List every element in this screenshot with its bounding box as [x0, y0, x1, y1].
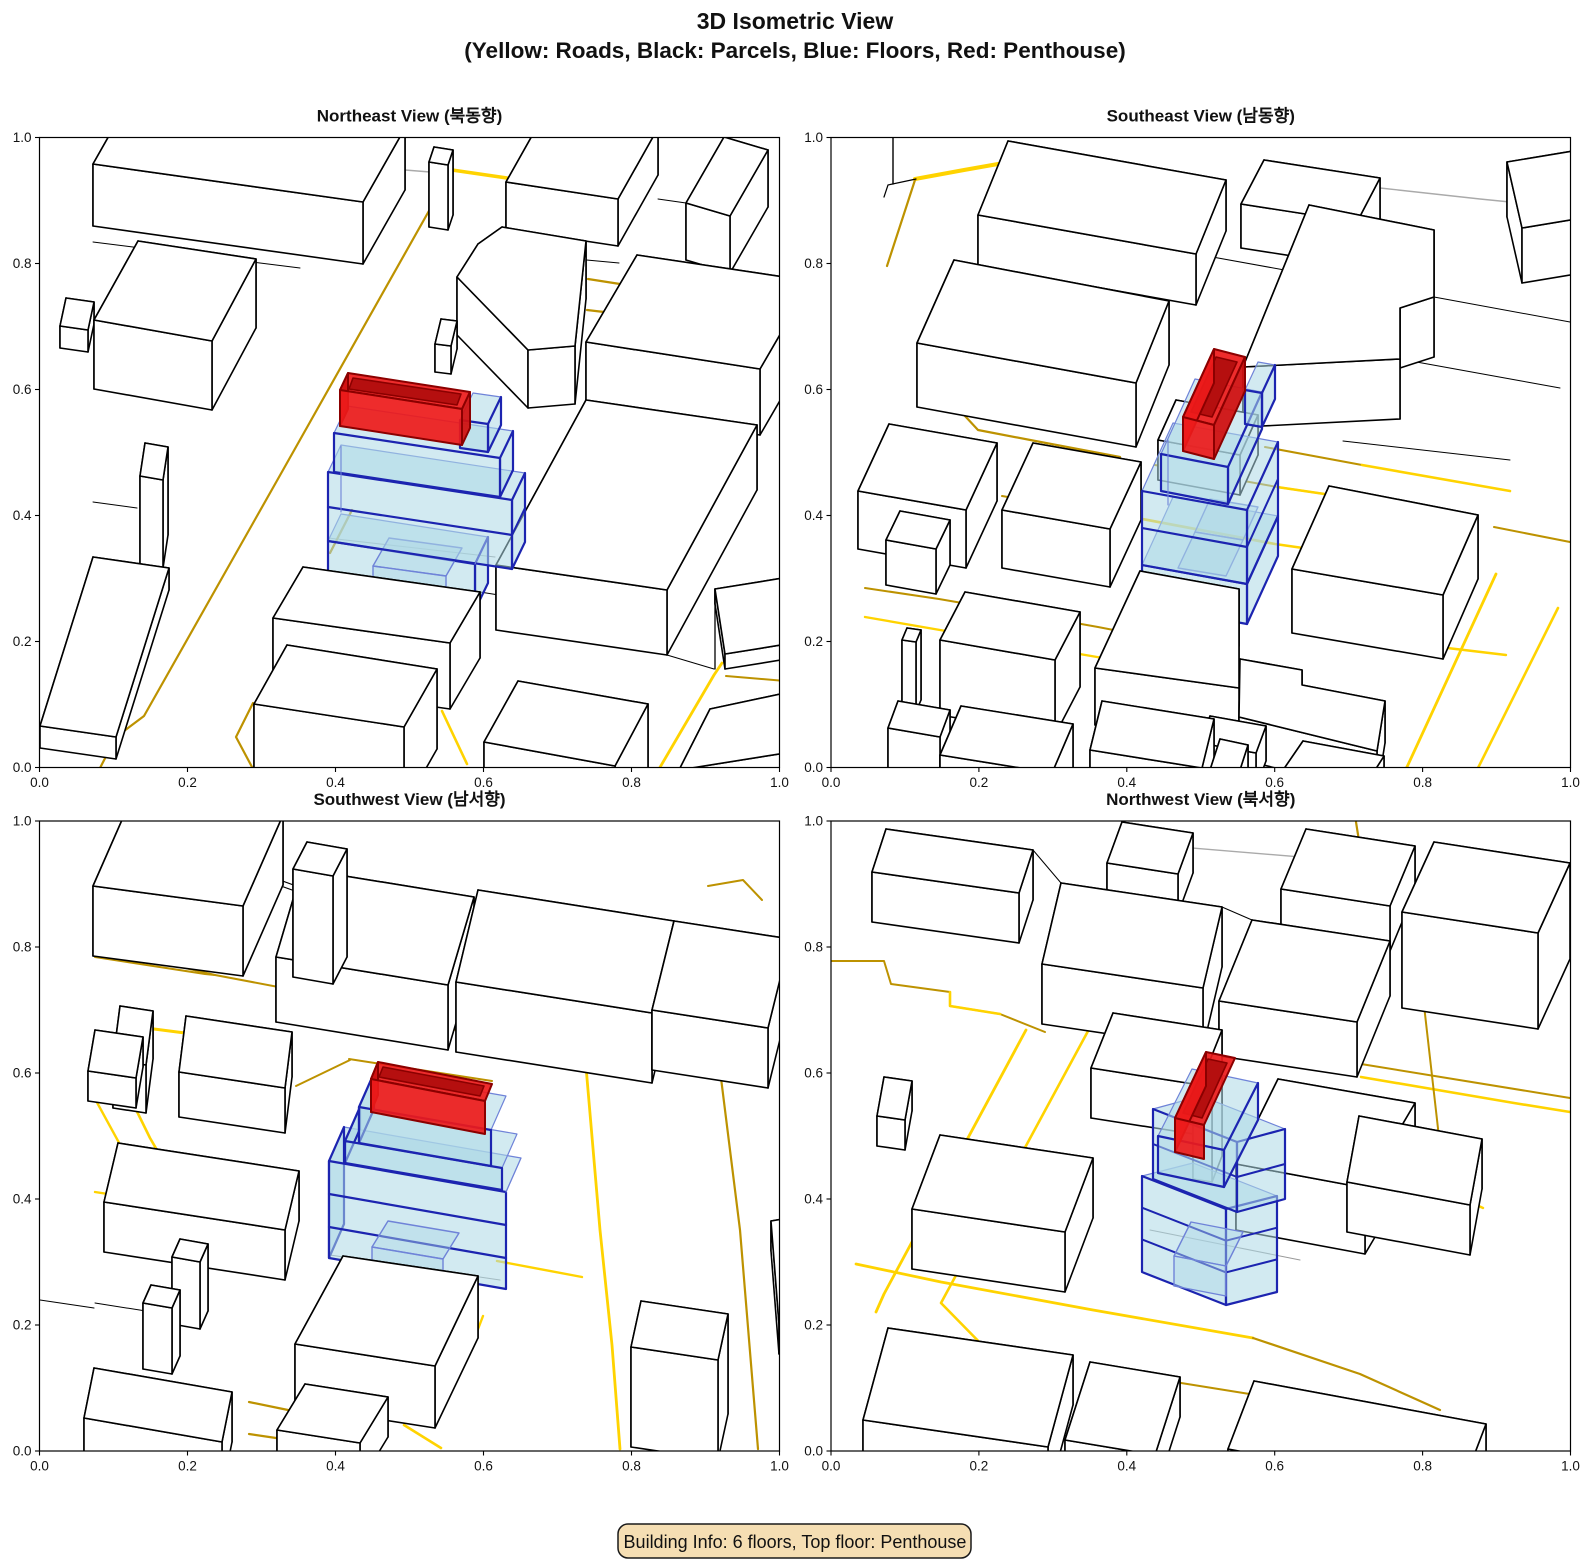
- svg-text:0.4: 0.4: [804, 508, 823, 523]
- svg-text:0.6: 0.6: [474, 775, 493, 790]
- svg-text:0.8: 0.8: [1413, 1459, 1432, 1474]
- svg-text:0.0: 0.0: [804, 760, 823, 775]
- svg-text:0.4: 0.4: [1117, 775, 1136, 790]
- svg-text:Northeast View (북동향): Northeast View (북동향): [317, 106, 502, 126]
- svg-text:0.8: 0.8: [13, 256, 32, 271]
- svg-text:0.6: 0.6: [13, 1066, 32, 1081]
- svg-text:1.0: 1.0: [1561, 1459, 1580, 1474]
- svg-text:0.8: 0.8: [804, 256, 823, 271]
- svg-text:0.4: 0.4: [13, 508, 32, 523]
- svg-text:0.8: 0.8: [1413, 775, 1432, 790]
- svg-text:0.0: 0.0: [30, 775, 49, 790]
- svg-text:0.0: 0.0: [804, 1444, 823, 1459]
- svg-text:1.0: 1.0: [13, 130, 32, 145]
- svg-text:1.0: 1.0: [13, 814, 32, 829]
- svg-text:0.2: 0.2: [178, 775, 197, 790]
- svg-text:0.2: 0.2: [804, 634, 823, 649]
- svg-text:1.0: 1.0: [770, 1459, 789, 1474]
- svg-text:0.4: 0.4: [13, 1192, 32, 1207]
- svg-text:1.0: 1.0: [770, 775, 789, 790]
- svg-text:1.0: 1.0: [804, 814, 823, 829]
- svg-text:Southeast View (남동향): Southeast View (남동향): [1107, 106, 1295, 126]
- svg-text:Northwest View (북서향): Northwest View (북서향): [1106, 789, 1295, 809]
- svg-text:Building Info: 6 floors, Top f: Building Info: 6 floors, Top floor: Pent…: [624, 1532, 967, 1552]
- svg-text:0.6: 0.6: [1265, 1459, 1284, 1474]
- svg-text:0.2: 0.2: [178, 1459, 197, 1474]
- svg-text:0.0: 0.0: [13, 1444, 32, 1459]
- svg-text:0.8: 0.8: [804, 940, 823, 955]
- svg-text:0.0: 0.0: [822, 1459, 841, 1474]
- svg-text:0.4: 0.4: [326, 775, 345, 790]
- svg-text:0.4: 0.4: [326, 1459, 345, 1474]
- svg-text:0.6: 0.6: [474, 1459, 493, 1474]
- svg-text:3D Isometric View: 3D Isometric View: [697, 8, 894, 34]
- svg-text:0.4: 0.4: [1117, 1459, 1136, 1474]
- svg-text:0.8: 0.8: [622, 1459, 641, 1474]
- svg-text:0.2: 0.2: [13, 1318, 32, 1333]
- svg-text:0.6: 0.6: [13, 382, 32, 397]
- svg-text:0.8: 0.8: [13, 940, 32, 955]
- svg-text:0.2: 0.2: [804, 1318, 823, 1333]
- svg-text:Southwest View (남서향): Southwest View (남서향): [313, 789, 505, 809]
- svg-text:0.6: 0.6: [1265, 775, 1284, 790]
- svg-text:0.6: 0.6: [804, 1066, 823, 1081]
- svg-text:0.8: 0.8: [622, 775, 641, 790]
- svg-text:0.0: 0.0: [822, 775, 841, 790]
- svg-text:(Yellow: Roads, Black: Parcels: (Yellow: Roads, Black: Parcels, Blue: Fl…: [464, 38, 1125, 63]
- svg-text:0.6: 0.6: [804, 382, 823, 397]
- svg-text:0.2: 0.2: [970, 775, 989, 790]
- svg-text:1.0: 1.0: [1561, 775, 1580, 790]
- svg-text:0.0: 0.0: [13, 760, 32, 775]
- svg-text:0.2: 0.2: [970, 1459, 989, 1474]
- svg-text:1.0: 1.0: [804, 130, 823, 145]
- svg-text:0.2: 0.2: [13, 634, 32, 649]
- svg-text:0.4: 0.4: [804, 1192, 823, 1207]
- svg-text:0.0: 0.0: [30, 1459, 49, 1474]
